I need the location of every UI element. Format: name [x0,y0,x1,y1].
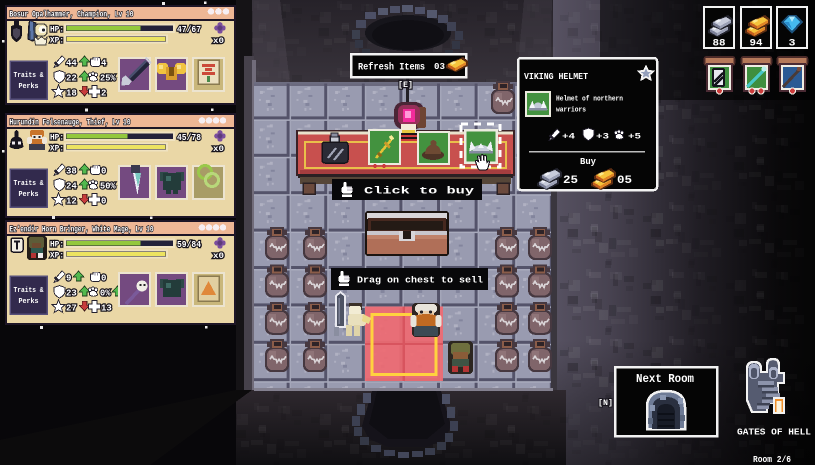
svg-text:[N]: [N] [598,398,613,408]
svg-text:Hurundin Felsenauge, Thief, Lv: Hurundin Felsenauge, Thief, Lv 10 [10,119,131,128]
svg-text:05: 05 [617,175,632,187]
svg-text:Perks: Perks [19,191,39,199]
svg-text:2: 2 [101,89,106,99]
svg-text:44: 44 [66,59,77,69]
svg-text:22: 22 [66,74,77,84]
svg-text:Traits &: Traits & [14,180,44,188]
svg-text:12: 12 [66,197,77,207]
svg-text:47/67: 47/67 [177,25,201,35]
svg-text:x0: x0 [213,37,224,46]
svg-text:x0: x0 [213,252,224,261]
svg-text:+4: +4 [562,132,575,142]
svg-text:XP:: XP: [50,251,64,261]
svg-text:24: 24 [66,182,77,192]
svg-text:warriors: warriors [556,107,586,115]
svg-text:Buy: Buy [580,157,597,167]
svg-text:0: 0 [101,197,106,207]
svg-text:Click to buy: Click to buy [364,186,474,198]
svg-text:Traits &: Traits & [14,72,44,80]
svg-text:x0: x0 [213,145,224,154]
svg-text:Bosur Opalhammer, Champion, Lv: Bosur Opalhammer, Champion, Lv 10 [10,11,134,20]
svg-text:03: 03 [434,62,445,72]
svg-text:Traits &: Traits & [14,287,44,295]
svg-text:Next Room: Next Room [636,372,694,386]
svg-text:38: 38 [66,167,77,177]
svg-text:27: 27 [66,304,77,314]
svg-text:3: 3 [789,39,796,50]
svg-text:9: 9 [66,274,71,284]
svg-text:94: 94 [750,39,763,50]
svg-text:0: 0 [101,167,106,177]
svg-text:0: 0 [101,274,106,284]
svg-text:50%: 50% [100,182,116,192]
svg-text:HP:: HP: [50,25,64,35]
svg-text:Perks: Perks [19,298,39,306]
svg-text:XP:: XP: [50,144,64,154]
svg-text:Helmet of northern: Helmet of northern [556,96,623,104]
svg-text:25%: 25% [100,74,116,84]
svg-text:GATES OF HELL: GATES OF HELL [737,427,811,438]
svg-text:Refresh Items: Refresh Items [358,62,425,74]
svg-text:VIKING HELMET: VIKING HELMET [524,71,588,82]
svg-text:88: 88 [713,39,726,50]
svg-text:+5: +5 [628,132,641,142]
svg-text:59/84: 59/84 [177,240,202,250]
svg-text:4: 4 [101,59,107,69]
svg-text:HP:: HP: [50,240,64,250]
svg-text:0%: 0% [100,289,111,299]
svg-text:[E]: [E] [398,80,413,90]
svg-text:23: 23 [66,289,77,299]
svg-text:18: 18 [66,89,77,99]
svg-text:25: 25 [563,175,578,187]
svg-text:Room 2/6: Room 2/6 [753,455,791,465]
svg-text:+3: +3 [596,132,609,142]
svg-text:XP:: XP: [50,36,64,46]
svg-text:HP:: HP: [50,133,64,143]
svg-text:Perks: Perks [19,83,39,91]
svg-text:Drag on chest to sell: Drag on chest to sell [357,275,483,286]
svg-text:13: 13 [101,304,112,314]
svg-text:45/78: 45/78 [177,133,201,143]
svg-text:Ez'endir Horn Bringer, White M: Ez'endir Horn Bringer, White Mage, Lv 10 [10,226,154,235]
